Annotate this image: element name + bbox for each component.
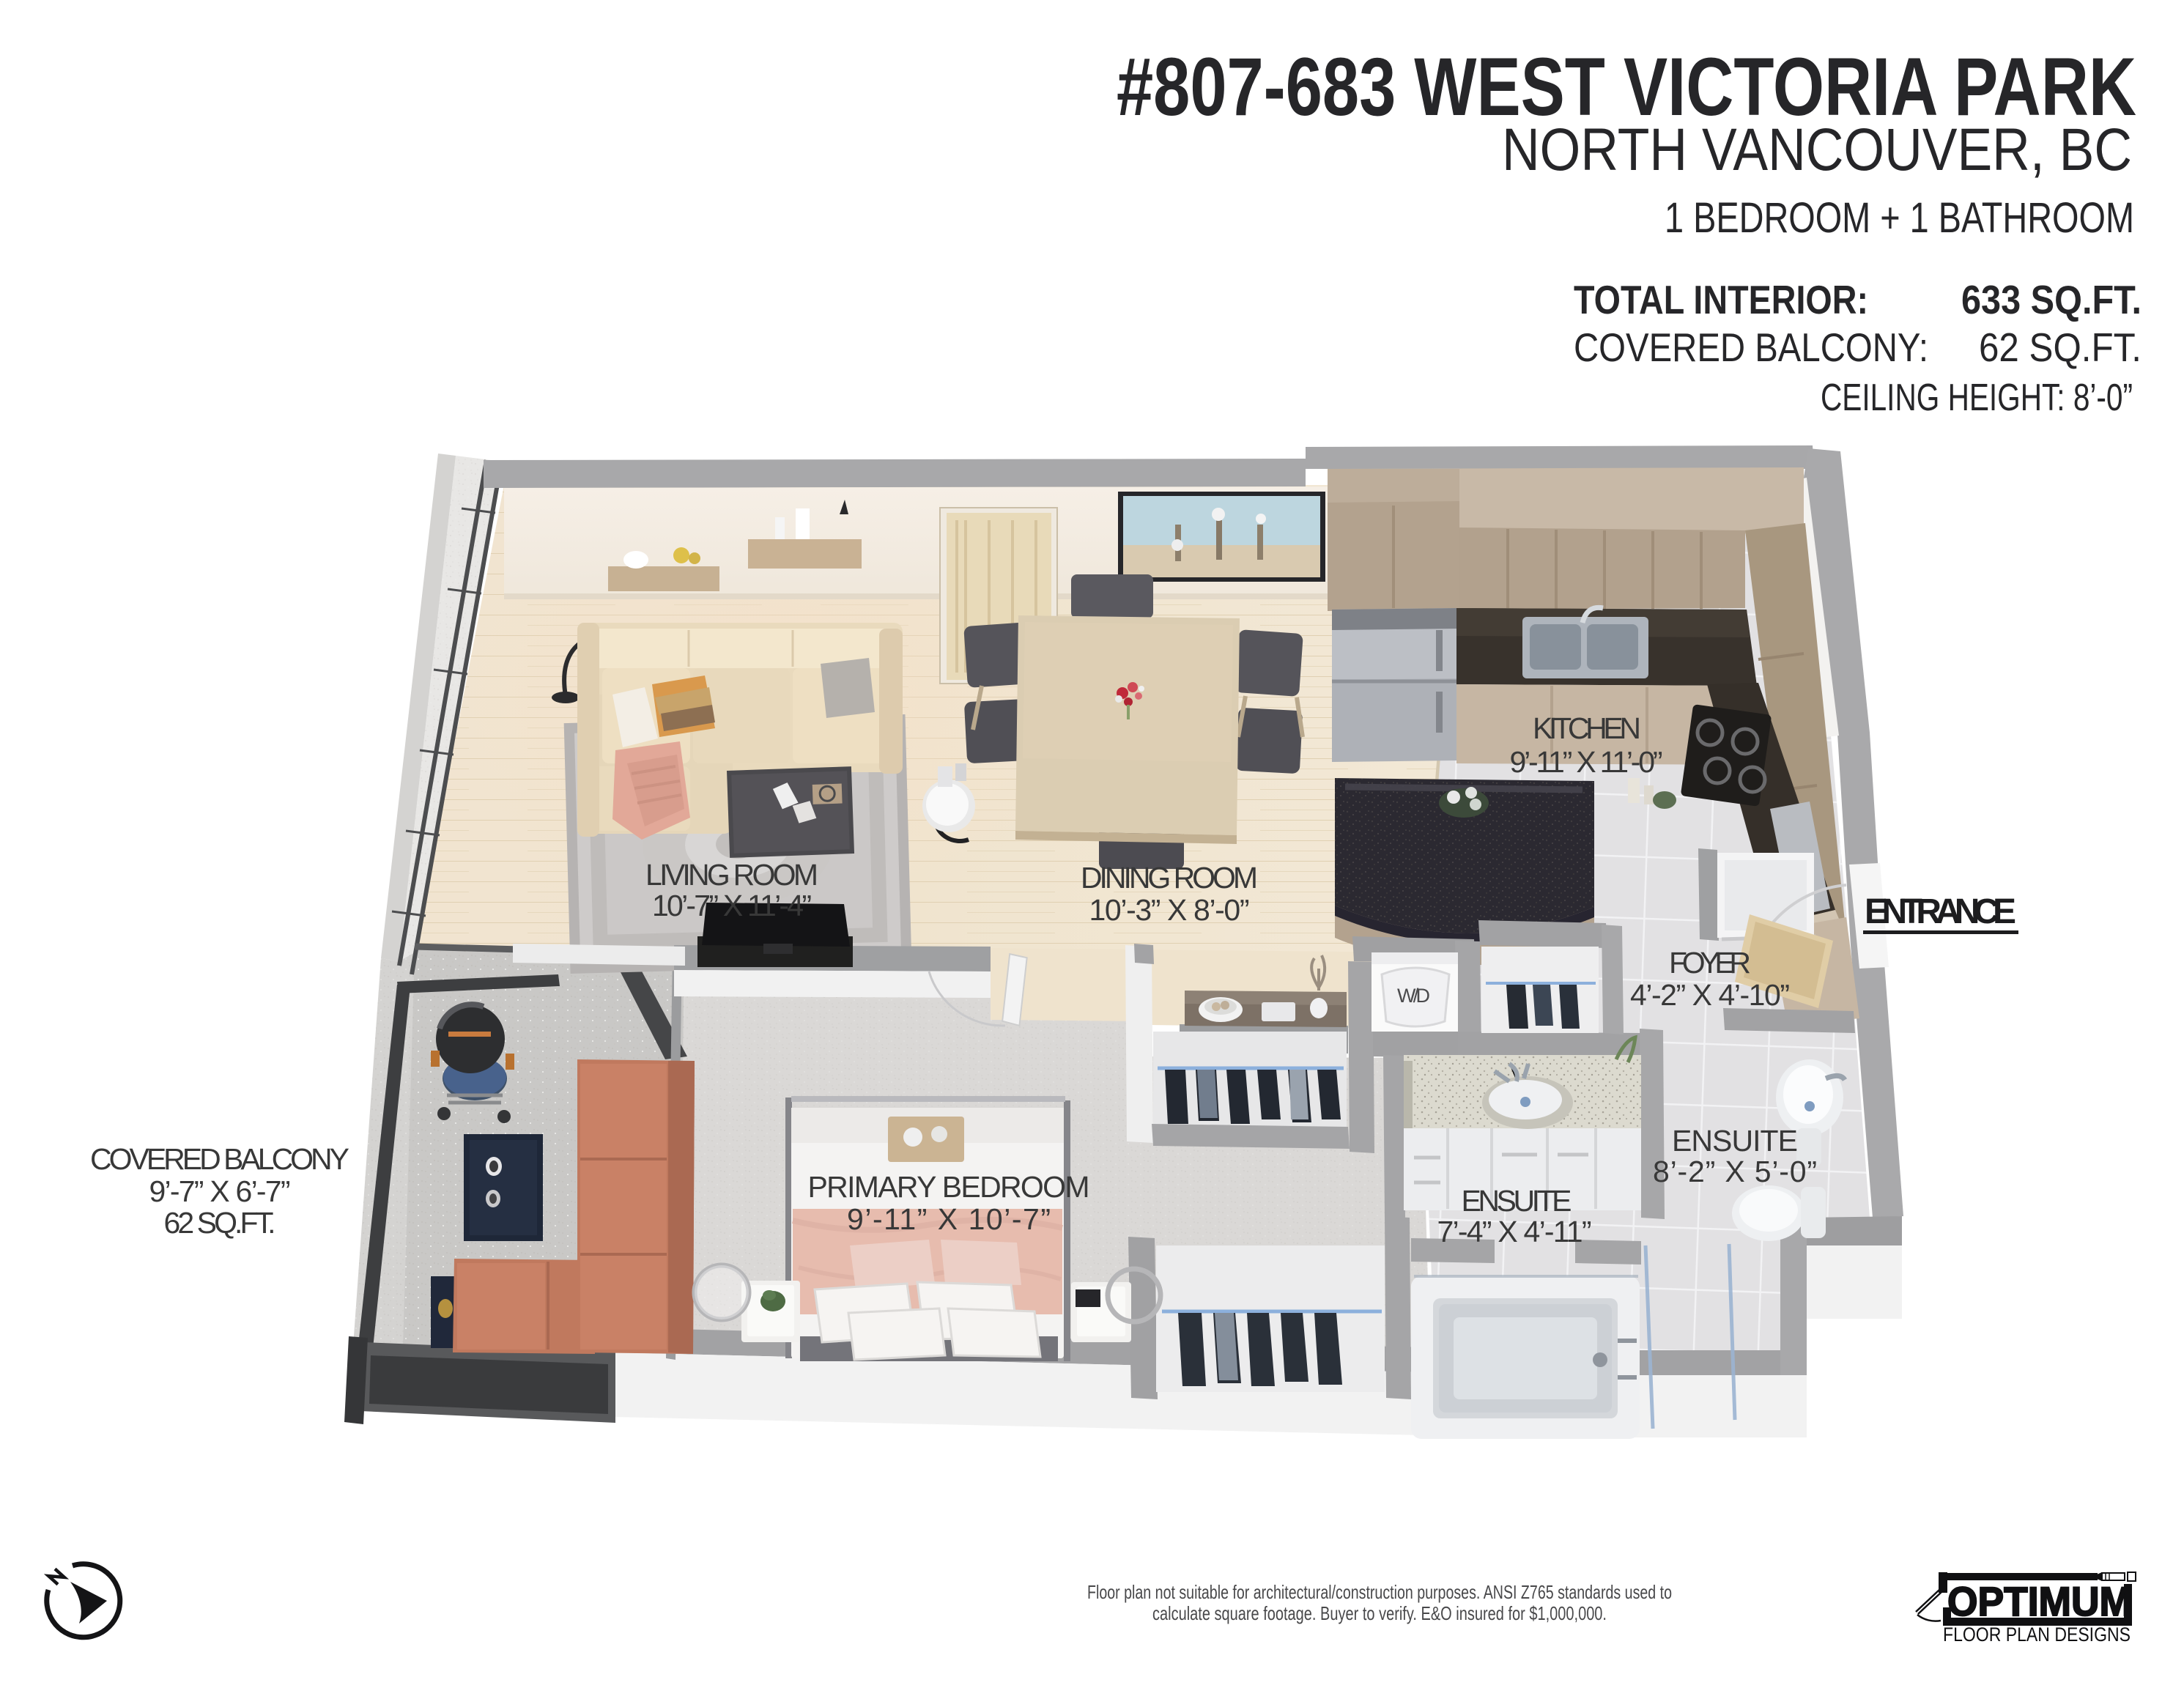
svg-text:OPTIMUM: OPTIMUM bbox=[1947, 1578, 2132, 1624]
svg-text:633 SQ.FT.: 633 SQ.FT. bbox=[1961, 277, 2142, 322]
svg-text:ENSUITE: ENSUITE bbox=[1462, 1184, 1574, 1218]
svg-text:TOTAL INTERIOR:: TOTAL INTERIOR: bbox=[1574, 277, 1868, 322]
svg-text:9’-11” X 10’-7”: 9’-11” X 10’-7” bbox=[847, 1202, 1052, 1236]
svg-text:10’-3” X 8’-0”: 10’-3” X 8’-0” bbox=[1089, 893, 1251, 927]
svg-text:ENSUITE: ENSUITE bbox=[1672, 1124, 1799, 1158]
svg-text:Floor plan not suitable for ar: Floor plan not suitable for architectura… bbox=[1087, 1581, 1672, 1603]
svg-text:NORTH VANCOUVER, BC: NORTH VANCOUVER, BC bbox=[1502, 116, 2132, 183]
svg-text:9’-7” X 6’-7”: 9’-7” X 6’-7” bbox=[149, 1174, 292, 1208]
svg-text:62 SQ.FT.: 62 SQ.FT. bbox=[1979, 325, 2142, 370]
svg-text:calculate square footage. Buye: calculate square footage. Buyer to verif… bbox=[1152, 1602, 1607, 1624]
svg-text:LIVING ROOM: LIVING ROOM bbox=[645, 858, 820, 892]
svg-text:FLOOR PLAN DESIGNS: FLOOR PLAN DESIGNS bbox=[1943, 1624, 2131, 1646]
svg-text:W/D: W/D bbox=[1397, 985, 1431, 1007]
svg-text:9’-11” X 11’-0”: 9’-11” X 11’-0” bbox=[1510, 745, 1665, 779]
svg-text:62 SQ.FT.: 62 SQ.FT. bbox=[164, 1206, 278, 1240]
svg-text:DINING ROOM: DINING ROOM bbox=[1081, 861, 1259, 895]
svg-text:COVERED BALCONY: COVERED BALCONY bbox=[90, 1142, 351, 1176]
svg-text:PRIMARY BEDROOM: PRIMARY BEDROOM bbox=[808, 1170, 1092, 1204]
svg-text:COVERED BALCONY:: COVERED BALCONY: bbox=[1574, 325, 1928, 370]
svg-text:ENTRANCE: ENTRANCE bbox=[1865, 892, 2017, 931]
svg-text:4’-2” X 4’-10”: 4’-2” X 4’-10” bbox=[1630, 978, 1791, 1012]
svg-text:7’-4” X 4’-11”: 7’-4” X 4’-11” bbox=[1437, 1215, 1593, 1248]
svg-text:FOYER: FOYER bbox=[1669, 946, 1752, 980]
svg-text:8’-2” X 5’-0”: 8’-2” X 5’-0” bbox=[1653, 1155, 1818, 1188]
svg-text:KITCHEN: KITCHEN bbox=[1533, 711, 1643, 745]
svg-text:10’-7” X 11’-4”: 10’-7” X 11’-4” bbox=[652, 889, 813, 922]
svg-text:CEILING HEIGHT: 8’-0”: CEILING HEIGHT: 8’-0” bbox=[1821, 377, 2133, 419]
svg-text:1 BEDROOM + 1 BATHROOM: 1 BEDROOM + 1 BATHROOM bbox=[1665, 194, 2134, 242]
